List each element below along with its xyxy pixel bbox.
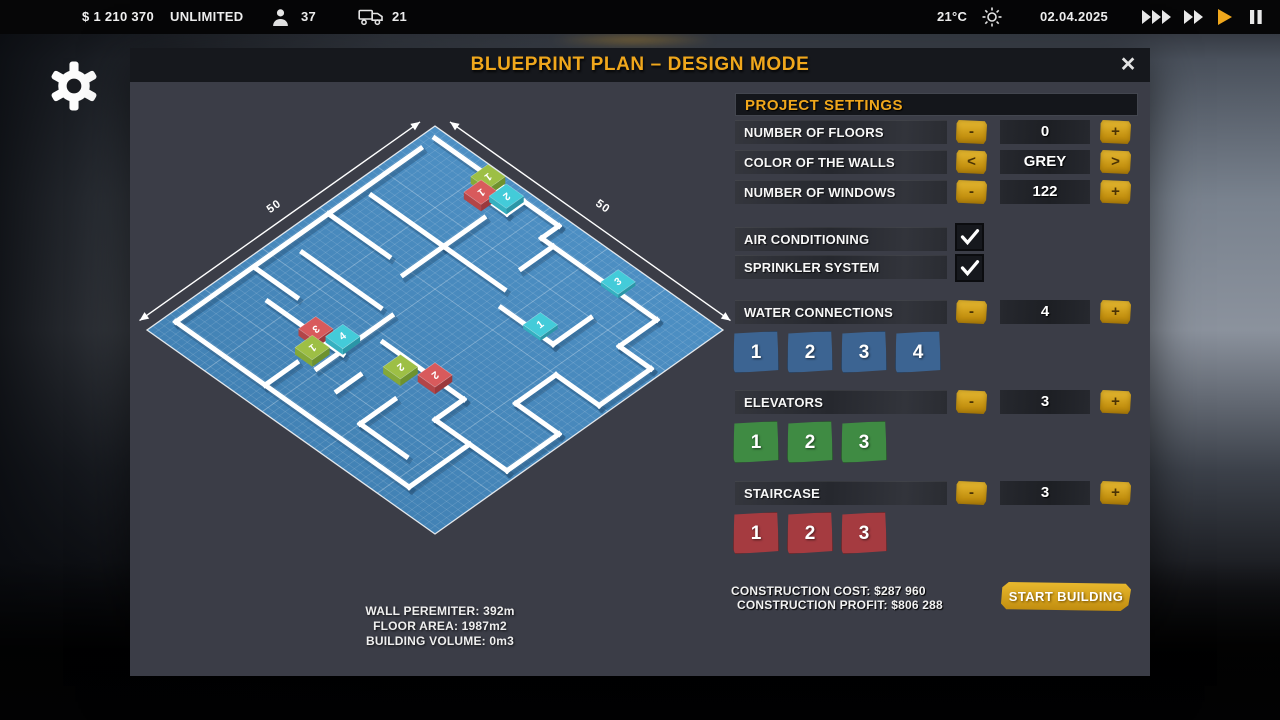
staircase-tile-3[interactable]: 3 [841, 512, 887, 554]
top-bar: $ 1 210 370 UNLIMITED 37 21 21°C 02.04.2… [0, 0, 1280, 34]
money-display: $ 1 210 370 [82, 0, 154, 34]
blueprint-canvas[interactable]: 11231341225050 [138, 88, 744, 608]
background-glow [548, 34, 718, 46]
water-connections-value: 4 [1000, 300, 1090, 324]
truck-icon [358, 9, 385, 31]
play-button[interactable] [1218, 9, 1233, 30]
water-connections-tile-4[interactable]: 4 [895, 331, 941, 373]
setting-row-2-value: 122 [1000, 180, 1090, 204]
speed-x3-button[interactable] [1142, 10, 1174, 29]
water-connections-tile-1[interactable]: 1 [733, 331, 779, 373]
staircase-decrease-button[interactable]: - [956, 481, 987, 505]
trucks-count: 21 [392, 0, 407, 34]
water-connections-label: WATER CONNECTIONS [735, 300, 947, 324]
date-display: 02.04.2025 [1040, 0, 1108, 34]
building-stats: WALL PEREMITER: 392m FLOOR AREA: 1987m2 … [325, 604, 555, 649]
limit-display: UNLIMITED [170, 0, 243, 34]
setting-row-2-label: NUMBER OF WINDOWS [735, 180, 947, 204]
water-connections-decrease-button[interactable]: - [956, 300, 987, 324]
wall-perimeter-stat: WALL PEREMITER: 392m [325, 604, 555, 619]
modal-title: BLUEPRINT PLAN – DESIGN MODE [130, 48, 1150, 82]
setting-row-0-decrease-button[interactable]: - [956, 120, 987, 144]
start-building-button[interactable]: START BUILDING [1001, 582, 1131, 611]
workers-count: 37 [301, 0, 316, 34]
elevators-decrease-button[interactable]: - [956, 390, 987, 414]
settings-gear-button[interactable] [46, 58, 104, 116]
modal-titlebar: BLUEPRINT PLAN – DESIGN MODE × [130, 48, 1150, 82]
staircase-value: 3 [1000, 481, 1090, 505]
setting-row-1-increase-button[interactable]: > [1100, 150, 1131, 174]
staircase-label: STAIRCASE [735, 481, 947, 505]
setting-row-0-label: NUMBER OF FLOORS [735, 120, 947, 144]
setting-row-1-label: COLOR OF THE WALLS [735, 150, 947, 174]
elevators-increase-button[interactable]: + [1100, 390, 1131, 414]
setting-row-0-increase-button[interactable]: + [1100, 120, 1131, 144]
elevators-value: 3 [1000, 390, 1090, 414]
toggle-0-checkbox[interactable] [955, 223, 984, 251]
toggle-0-label: AIR CONDITIONING [735, 227, 947, 251]
building-volume-stat: BUILDING VOLUME: 0m3 [325, 634, 555, 649]
blueprint-modal: BLUEPRINT PLAN – DESIGN MODE × 112313412… [130, 48, 1150, 676]
checkmark-icon [960, 228, 980, 246]
elevators-tile-3[interactable]: 3 [841, 421, 887, 463]
staircase-increase-button[interactable]: + [1100, 481, 1131, 505]
project-settings-header: PROJECT SETTINGS [735, 93, 1138, 116]
speed-x2-button[interactable] [1184, 10, 1206, 29]
setting-row-0-value: 0 [1000, 120, 1090, 144]
water-connections-tile-2[interactable]: 2 [787, 331, 833, 373]
dimension-label-right: 50 [593, 198, 612, 216]
setting-row-1-decrease-button[interactable]: < [956, 150, 987, 174]
elevators-tile-1[interactable]: 1 [733, 421, 779, 463]
water-connections-increase-button[interactable]: + [1100, 300, 1131, 324]
checkmark-icon [960, 259, 980, 277]
temperature-display: 21°C [937, 0, 967, 34]
floor-area-stat: FLOOR AREA: 1987m2 [325, 619, 555, 634]
water-connections-tile-3[interactable]: 3 [841, 331, 887, 373]
construction-profit: CONSTRUCTION PROFIT: $806 288 [737, 598, 943, 612]
person-icon [272, 8, 289, 32]
toggle-1-label: SPRINKLER SYSTEM [735, 255, 947, 279]
elevators-tile-2[interactable]: 2 [787, 421, 833, 463]
dimension-label-left: 50 [265, 198, 284, 216]
pause-button[interactable] [1250, 10, 1263, 29]
setting-row-1-value: GREY [1000, 150, 1090, 174]
staircase-tile-1[interactable]: 1 [733, 512, 779, 554]
setting-row-2-decrease-button[interactable]: - [956, 180, 987, 204]
sun-icon [981, 6, 1003, 33]
construction-cost: CONSTRUCTION COST: $287 960 [731, 584, 926, 598]
close-button[interactable]: × [1112, 48, 1144, 82]
setting-row-2-increase-button[interactable]: + [1100, 180, 1131, 204]
elevators-label: ELEVATORS [735, 390, 947, 414]
toggle-1-checkbox[interactable] [955, 254, 984, 282]
staircase-tile-2[interactable]: 2 [787, 512, 833, 554]
